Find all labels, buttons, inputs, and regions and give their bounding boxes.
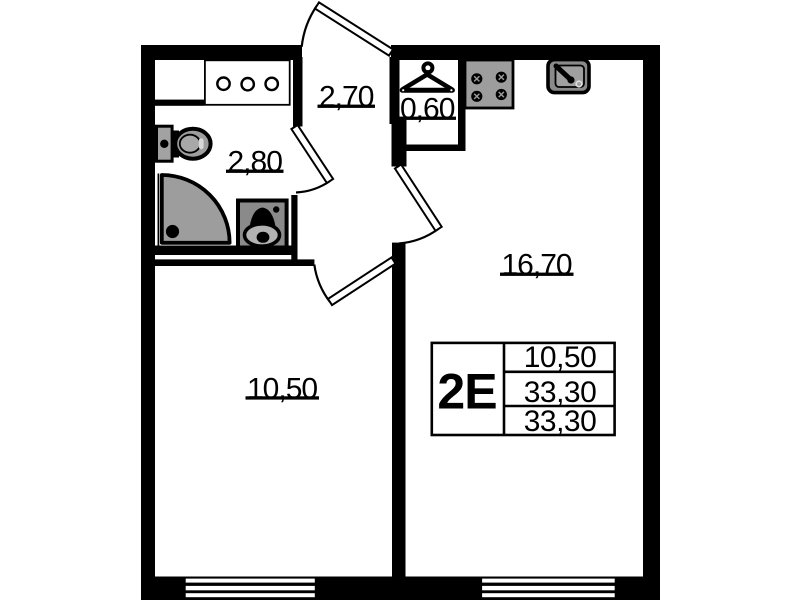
svg-text:10,50: 10,50 — [247, 372, 317, 405]
svg-text:2E: 2E — [437, 364, 496, 420]
svg-text:2,80: 2,80 — [228, 146, 283, 179]
svg-text:33,30: 33,30 — [524, 405, 597, 438]
svg-text:33,30: 33,30 — [524, 376, 597, 409]
svg-text:2,70: 2,70 — [319, 81, 374, 114]
svg-text:0,60: 0,60 — [400, 93, 455, 126]
svg-text:10,50: 10,50 — [524, 341, 597, 374]
svg-text:16,70: 16,70 — [502, 249, 572, 282]
